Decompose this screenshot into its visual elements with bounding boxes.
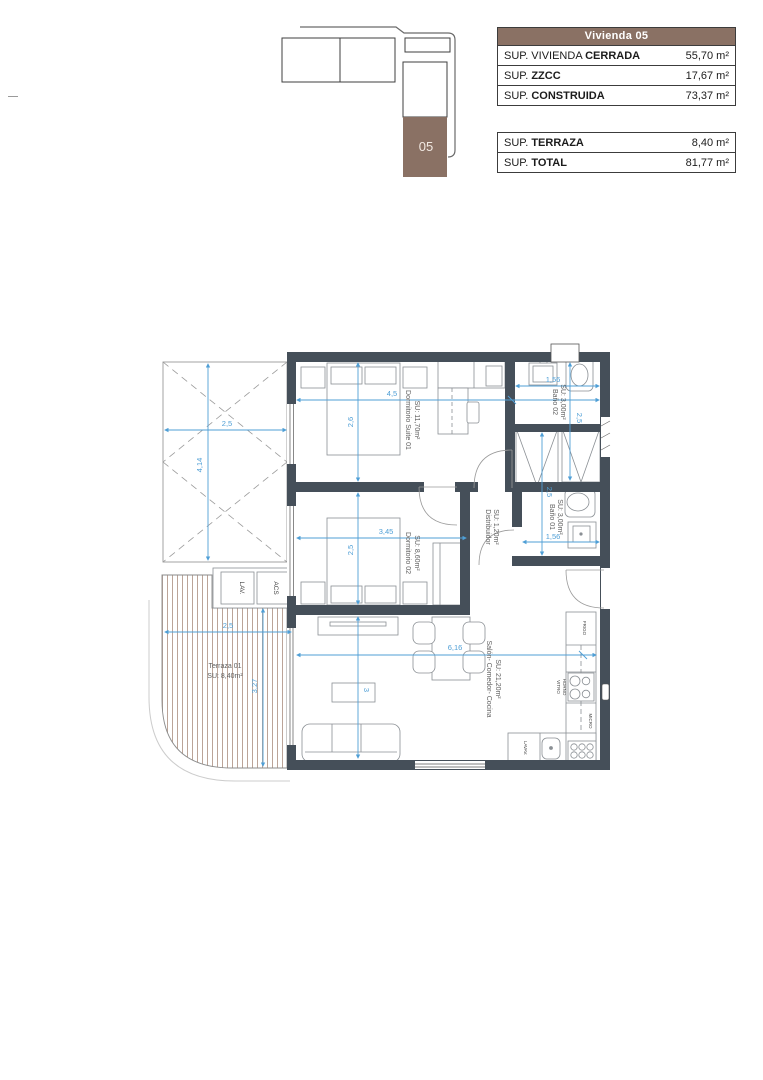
dim-label: 4,14 [195,458,204,473]
dim-label: 1,56 [546,375,561,384]
fixture-label-vitro: VITRO [556,680,561,694]
fixture-label-horno: HORNO [562,679,567,696]
room-name: Salón- Comedor- Cocina [485,640,492,717]
room-area: SU: 11,70m² [413,401,420,440]
room-name: Dormitorio 02 [404,532,411,574]
room-area: SU: 1,20m² [492,509,499,545]
row-label: SUP. ZZCC [504,70,561,82]
floor-plan: 2,5 4,14 4,5 2,6 1,56 2,5 3,45 2,5 2,5 1… [148,330,626,790]
row-value: 81,77 m² [686,157,729,169]
room-name: Baño 01 [548,504,555,530]
row-value: 73,37 m² [686,90,729,102]
nightstand [403,367,427,388]
table-row: SUP. TERRAZA 8,40 m² [498,133,735,152]
entry-opening [601,568,610,609]
room-area: SU: 8,60m² [413,535,420,571]
shower-box [516,428,558,486]
fixture-label-frigo: FRIGO [582,621,587,636]
plan-sheet: 05 Vivienda 05 SUP. VIVIENDA CERRADA 55,… [0,0,763,1080]
room-area: SU: 3,00m² [559,384,566,420]
nightstand [403,582,427,604]
dining-chair [413,622,435,644]
pillow [331,586,362,603]
dim-label: 3 [362,688,371,692]
room-area: SU: 8,40m² [207,673,243,680]
row-value: 17,67 m² [686,70,729,82]
row-label: SUP. VIVIENDA CERRADA [504,50,640,62]
dim-label: 6,16 [448,643,463,652]
dim-label: 4,5 [387,389,397,398]
closet-shelf [486,366,502,386]
dim-label: 2,6 [346,417,355,427]
row-label: SUP. CONSTRUIDA [504,90,605,102]
dim-label: 2,5 [575,413,584,423]
key-plan: 05 [268,8,468,183]
table-row: SUP. VIVIENDA CERRADA 55,70 m² [498,45,735,65]
coffee-table [332,683,375,702]
margin-mark [8,96,18,97]
fixture-label-lav: LAV. [238,581,245,594]
dim-label: 2,5 [222,419,232,428]
dining-chair [413,651,435,673]
dim-label: 2,5 [545,487,554,497]
room-area: SU: 3,00m² [556,499,563,535]
room-name: Terraza 01 [208,663,241,670]
room-name: Distribuidor [484,509,491,545]
unit-block [403,62,447,117]
table-row: SUP. ZZCC 17,67 m² [498,65,735,85]
unit-block [282,38,340,82]
areas-table-main: Vivienda 05 SUP. VIVIENDA CERRADA 55,70 … [497,27,736,106]
fixture-label-lavav: LAVAV. [523,741,528,755]
pillow [365,586,396,603]
desk [438,388,468,434]
row-value: 8,40 m² [692,137,729,149]
pergola-area [163,362,287,562]
dim-label: 3,27 [250,679,259,694]
washer-box [221,572,254,604]
fixture-label-acs: ACS [272,581,279,595]
room-name: Dormitorio Suite 01 [404,390,411,450]
row-label: SUP. TOTAL [504,157,567,169]
row-value: 55,70 m² [686,50,729,62]
unit-block [340,38,395,82]
fixture-label-micro: MICRO [588,714,593,729]
sofa [302,724,400,762]
room-name: Baño 02 [551,389,558,415]
vent-slot [602,684,609,700]
desk-chair [467,402,479,423]
areas-table-totals: SUP. TERRAZA 8,40 m² SUP. TOTAL 81,77 m² [497,132,736,173]
room-area: SU: 21,20m² [494,659,501,699]
pillow [365,367,396,384]
table-title: Vivienda 05 [498,28,735,45]
dining-chair [463,622,485,644]
pillow [331,367,362,384]
dining-chair [463,651,485,673]
row-label: SUP. TERRAZA [504,137,584,149]
shaft-box [551,344,579,362]
unit-number-label: 05 [419,139,433,154]
nightstand [301,367,325,388]
dim-label: 2,5 [223,621,233,630]
dim-label: 3,45 [379,527,394,536]
shower-box [562,428,600,482]
table-row: SUP. CONSTRUIDA 73,37 m² [498,85,735,105]
unit-block [405,38,450,52]
dim-label: 2,5 [346,545,355,555]
table-row: SUP. TOTAL 81,77 m² [498,152,735,172]
nightstand [301,582,325,604]
